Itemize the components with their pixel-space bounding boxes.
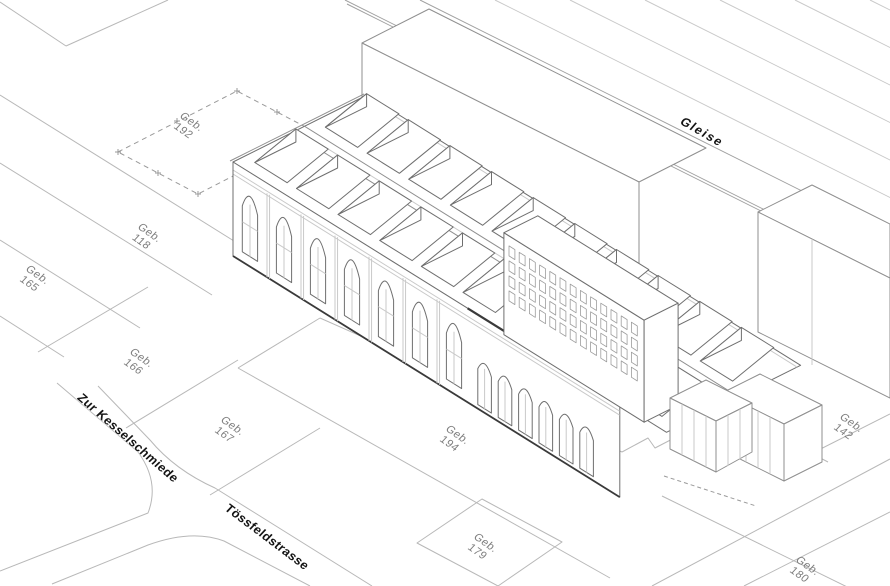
site-axonometric-drawing: [0, 0, 890, 586]
site-plan: Geb. 192 Geb. 118 Geb. 165 Geb. 166 Geb.…: [0, 0, 890, 586]
